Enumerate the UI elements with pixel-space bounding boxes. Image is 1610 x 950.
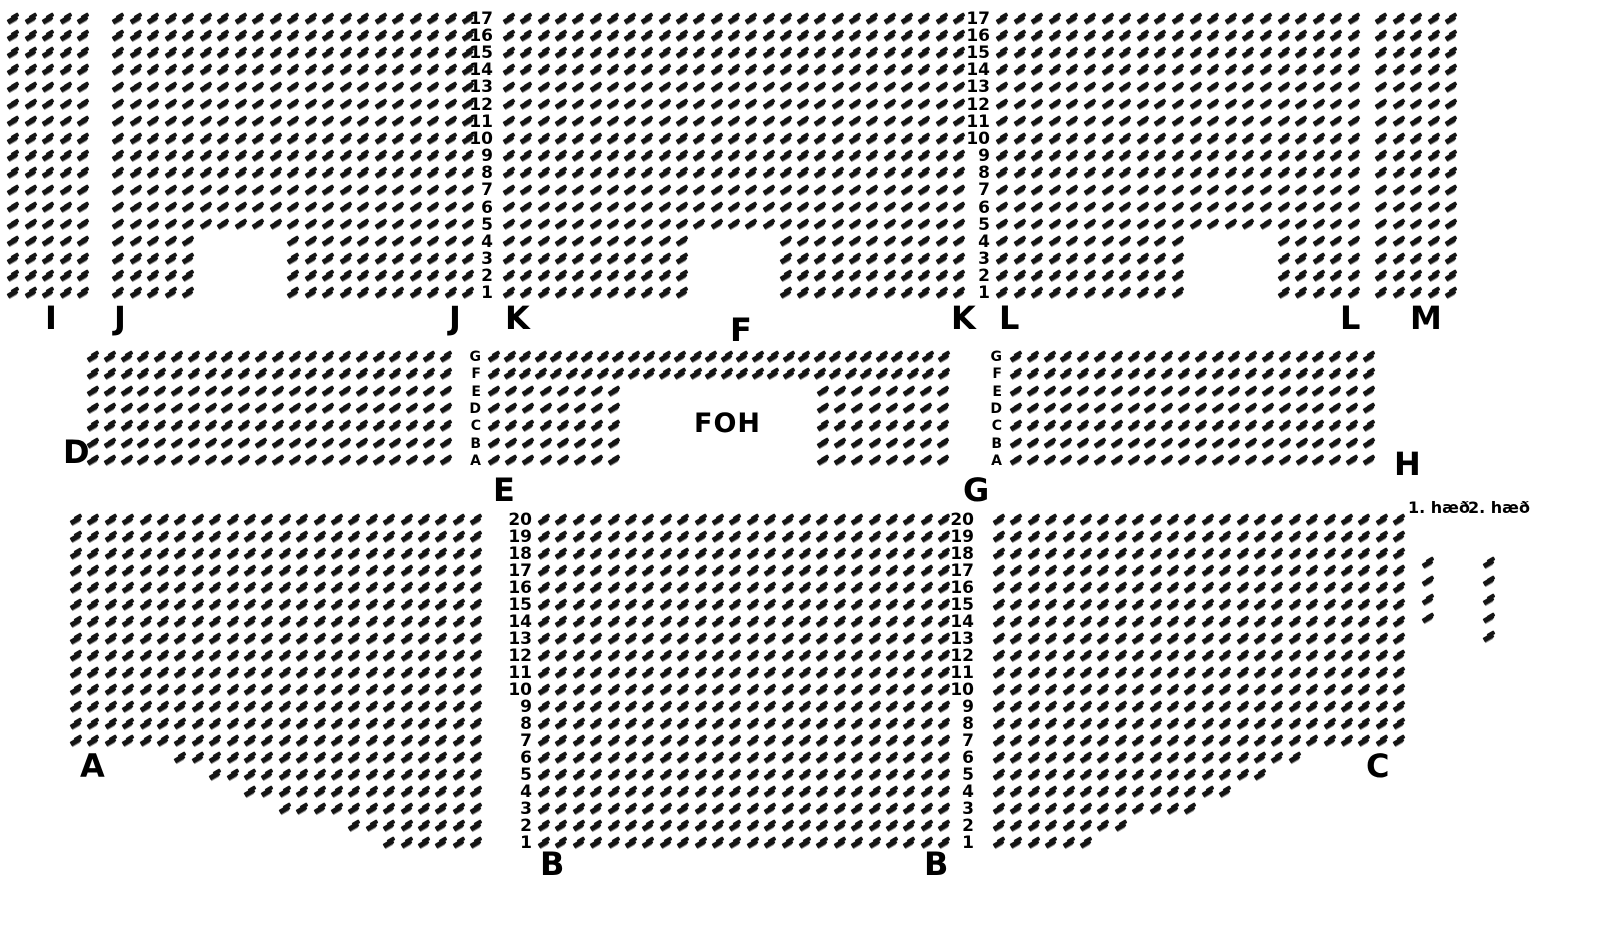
seat-C[interactable] [1237,583,1249,592]
seat-A[interactable] [331,753,343,762]
seat-F-upper[interactable] [866,151,878,160]
seat-F-upper[interactable] [676,65,688,74]
seat-C[interactable] [1010,532,1022,541]
seat-J[interactable] [112,254,124,263]
seat-C[interactable] [1254,600,1266,609]
seat-L[interactable] [1260,203,1272,212]
seat-I[interactable] [77,83,89,92]
seat-M[interactable] [1393,134,1405,143]
seat-B[interactable] [747,685,759,694]
seat-I[interactable] [60,203,72,212]
seat-F-upper[interactable] [901,31,913,40]
seat-J[interactable] [287,134,299,143]
seat-B[interactable] [764,532,776,541]
seat-L[interactable] [1330,14,1342,23]
seat-J[interactable] [410,31,422,40]
seat-F-upper[interactable] [641,254,653,263]
seat-C[interactable] [1289,532,1301,541]
seat-B[interactable] [573,600,585,609]
seat-H[interactable] [1195,387,1207,396]
seat-B[interactable] [729,804,741,813]
seat-F-upper[interactable] [503,117,515,126]
seat-L[interactable] [1207,151,1219,160]
seat-B[interactable] [555,821,567,830]
seat-A[interactable] [157,719,169,728]
seat-C[interactable] [1167,651,1179,660]
seat-B[interactable] [782,787,794,796]
seat-C[interactable] [1010,787,1022,796]
seat-J[interactable] [165,237,177,246]
seat-C[interactable] [993,702,1005,711]
seat-I[interactable] [25,151,37,160]
seat-M[interactable] [1375,134,1387,143]
seat-A[interactable] [261,702,273,711]
seat-L[interactable] [1102,288,1114,297]
seat-L[interactable] [1295,186,1307,195]
seat-J[interactable] [112,134,124,143]
seat-A[interactable] [348,787,360,796]
seat-B[interactable] [886,515,898,524]
seat-B[interactable] [608,838,620,847]
seat-I[interactable] [77,203,89,212]
seat-F-upper[interactable] [728,134,740,143]
seat-L[interactable] [1172,83,1184,92]
seat-A[interactable] [383,668,395,677]
seat-L[interactable] [1119,100,1131,109]
seat-F-upper[interactable] [780,48,792,57]
seat-A[interactable] [435,804,447,813]
seat-D[interactable] [255,352,267,361]
seat-B[interactable] [555,634,567,643]
seat-C[interactable] [1306,583,1318,592]
seat-H[interactable] [1094,352,1106,361]
seat-J[interactable] [130,117,142,126]
seat-B[interactable] [695,549,707,558]
seat-J[interactable] [270,48,282,57]
seat-D[interactable] [221,369,233,378]
seat-A[interactable] [383,651,395,660]
seat-F-upper[interactable] [901,14,913,23]
seat-A[interactable] [453,702,465,711]
seat-A[interactable] [227,719,239,728]
seat-A[interactable] [314,515,326,524]
seat-B[interactable] [851,770,863,779]
seat-A[interactable] [157,634,169,643]
seat-C[interactable] [1132,532,1144,541]
seat-F-upper[interactable] [538,117,550,126]
seat-C[interactable] [1167,583,1179,592]
seat-J[interactable] [217,168,229,177]
seat-A[interactable] [70,736,82,745]
seat-F-upper[interactable] [849,288,861,297]
seat-C[interactable] [1080,719,1092,728]
seat-B[interactable] [695,770,707,779]
seat-C[interactable] [1376,549,1388,558]
seat-F-upper[interactable] [884,134,896,143]
seat-EG-wide[interactable] [845,352,857,361]
seat-F-upper[interactable] [711,31,723,40]
seat-B[interactable] [660,770,672,779]
seat-G-block[interactable] [817,421,829,430]
seat-EG-wide[interactable] [876,369,888,378]
seat-H[interactable] [1111,421,1123,430]
seat-B[interactable] [799,804,811,813]
seat-L[interactable] [1066,186,1078,195]
seat-F-upper[interactable] [866,254,878,263]
seat-E-block[interactable] [574,439,586,448]
seat-F-upper[interactable] [814,168,826,177]
seat-A[interactable] [435,600,447,609]
seat-B[interactable] [677,549,689,558]
seat-L[interactable] [1313,271,1325,280]
seat-D[interactable] [305,439,317,448]
seat-A[interactable] [87,685,99,694]
seat-B[interactable] [851,549,863,558]
seat-A[interactable] [296,753,308,762]
seat-B[interactable] [903,838,915,847]
seat-F-upper[interactable] [624,186,636,195]
seat-A[interactable] [296,600,308,609]
seat-F-upper[interactable] [763,134,775,143]
seat-L[interactable] [1278,168,1290,177]
seat-A[interactable] [383,838,395,847]
seat-F-upper[interactable] [659,151,671,160]
seat-A[interactable] [366,719,378,728]
seat-J[interactable] [270,203,282,212]
seat-F-upper[interactable] [590,288,602,297]
seat-C[interactable] [1393,532,1405,541]
seat-C[interactable] [1028,634,1040,643]
seat-J[interactable] [112,186,124,195]
seat-L[interactable] [1049,65,1061,74]
seat-C[interactable] [1271,651,1283,660]
seat-M[interactable] [1393,117,1405,126]
seat-F-upper[interactable] [780,83,792,92]
seat-L[interactable] [1119,186,1131,195]
seat-C[interactable] [1341,617,1353,626]
seat-C[interactable] [1097,515,1109,524]
seat-J[interactable] [340,237,352,246]
seat-A[interactable] [261,617,273,626]
seat-B[interactable] [695,736,707,745]
seat-B[interactable] [816,804,828,813]
seat-C[interactable] [1132,583,1144,592]
seat-EG-wide[interactable] [488,369,500,378]
seat-J[interactable] [322,117,334,126]
seat-C[interactable] [1028,702,1040,711]
seat-F-upper[interactable] [814,117,826,126]
seat-B[interactable] [642,753,654,762]
seat-F-upper[interactable] [901,48,913,57]
seat-L[interactable] [1313,237,1325,246]
seat-L[interactable] [1154,117,1166,126]
seat-A[interactable] [105,515,117,524]
seat-C[interactable] [1063,685,1075,694]
seat-L[interactable] [1172,48,1184,57]
seat-B[interactable] [712,719,724,728]
seat-D[interactable] [154,421,166,430]
seat-B[interactable] [799,566,811,575]
seat-F-upper[interactable] [745,117,757,126]
seat-J[interactable] [392,117,404,126]
seat-A[interactable] [296,532,308,541]
seat-D[interactable] [389,439,401,448]
seat-E-block[interactable] [505,404,517,413]
seat-J[interactable] [392,151,404,160]
seat-A[interactable] [122,685,134,694]
seat-A[interactable] [296,583,308,592]
seat-L[interactable] [1102,100,1114,109]
seat-F-upper[interactable] [884,203,896,212]
seat-B[interactable] [886,668,898,677]
seat-B[interactable] [573,804,585,813]
seat-D[interactable] [356,352,368,361]
seat-B[interactable] [903,685,915,694]
seat-M[interactable] [1428,65,1440,74]
seat-L[interactable] [1031,83,1043,92]
seat-C[interactable] [1132,736,1144,745]
seat-M[interactable] [1393,168,1405,177]
seat-M[interactable] [1393,271,1405,280]
seat-L[interactable] [1119,220,1131,229]
seat-B[interactable] [555,600,567,609]
seat-EG-wide[interactable] [891,352,903,361]
seat-F-upper[interactable] [711,65,723,74]
seat-F-upper[interactable] [590,237,602,246]
seat-I[interactable] [60,117,72,126]
seat-A[interactable] [70,600,82,609]
seat-J[interactable] [287,254,299,263]
seat-C[interactable] [1237,736,1249,745]
seat-L[interactable] [1225,100,1237,109]
seat-F-upper[interactable] [763,151,775,160]
seat-A[interactable] [174,753,186,762]
seat-C[interactable] [1376,651,1388,660]
seat-D[interactable] [137,404,149,413]
seat-F-upper[interactable] [503,48,515,57]
seat-A[interactable] [366,515,378,524]
seat-F-upper[interactable] [676,83,688,92]
seat-C[interactable] [1080,787,1092,796]
seat-H[interactable] [1060,387,1072,396]
seat-B[interactable] [573,566,585,575]
seat-A[interactable] [296,515,308,524]
seat-L[interactable] [1242,48,1254,57]
seat-L[interactable] [1119,65,1131,74]
seat-C[interactable] [1306,651,1318,660]
seat-J[interactable] [340,48,352,57]
seat-C[interactable] [1150,566,1162,575]
seat-A[interactable] [122,634,134,643]
seat-C[interactable] [1219,770,1231,779]
seat-L[interactable] [1260,100,1272,109]
seat-B[interactable] [573,549,585,558]
seat-C[interactable] [1184,770,1196,779]
seat-B[interactable] [834,702,846,711]
seat-A[interactable] [244,770,256,779]
seat-A[interactable] [279,753,291,762]
seat-H[interactable] [1262,421,1274,430]
seat-A[interactable] [435,838,447,847]
seat-J[interactable] [305,288,317,297]
seat-F-upper[interactable] [503,186,515,195]
seat-A[interactable] [140,532,152,541]
seat-J[interactable] [410,271,422,280]
seat-A[interactable] [87,634,99,643]
seat-J[interactable] [427,151,439,160]
seat-F-upper[interactable] [590,220,602,229]
seat-F-upper[interactable] [572,186,584,195]
seat-H[interactable] [1178,387,1190,396]
seat-F-upper[interactable] [624,14,636,23]
seat-J[interactable] [322,288,334,297]
seat-C[interactable] [1132,600,1144,609]
seat-C[interactable] [1010,770,1022,779]
seat-I[interactable] [7,65,19,74]
seat-B[interactable] [695,838,707,847]
seat-F-upper[interactable] [607,31,619,40]
seat-A[interactable] [383,736,395,745]
seat-L[interactable] [1137,31,1149,40]
seat-F-upper[interactable] [918,168,930,177]
seat-C[interactable] [1080,583,1092,592]
seat-C[interactable] [1097,804,1109,813]
seat-H[interactable] [1212,369,1224,378]
seat-L[interactable] [1278,271,1290,280]
seat-A[interactable] [470,600,482,609]
seat-H[interactable] [1296,456,1308,465]
seat-H[interactable] [1161,387,1173,396]
seat-C[interactable] [1115,583,1127,592]
seat-H[interactable] [1027,421,1039,430]
seat-C[interactable] [1080,651,1092,660]
seat-B[interactable] [555,617,567,626]
seat-F-upper[interactable] [555,48,567,57]
seat-C[interactable] [1358,668,1370,677]
seat-J[interactable] [287,168,299,177]
seat-L[interactable] [1313,134,1325,143]
seat-L[interactable] [1278,48,1290,57]
seat-F-upper[interactable] [624,48,636,57]
seat-H[interactable] [1010,456,1022,465]
seat-J[interactable] [305,220,317,229]
seat-H[interactable] [1060,352,1072,361]
seat-C[interactable] [1341,600,1353,609]
seat-J[interactable] [182,186,194,195]
seat-B[interactable] [573,668,585,677]
seat-C[interactable] [1254,719,1266,728]
seat-L[interactable] [1172,134,1184,143]
seat-L[interactable] [1330,203,1342,212]
seat-C[interactable] [1010,719,1022,728]
seat-L[interactable] [1066,65,1078,74]
seat-D[interactable] [137,387,149,396]
seat-L[interactable] [1154,83,1166,92]
seat-J[interactable] [410,117,422,126]
seat-M[interactable] [1428,203,1440,212]
seat-G-block[interactable] [834,421,846,430]
seat-D[interactable] [423,369,435,378]
seat-F-upper[interactable] [676,186,688,195]
seat-B[interactable] [869,821,881,830]
seat-E-block[interactable] [505,387,517,396]
seat-B[interactable] [799,770,811,779]
seat-B[interactable] [834,736,846,745]
seat-G-block[interactable] [851,404,863,413]
seat-A[interactable] [331,787,343,796]
seat-G-block[interactable] [817,387,829,396]
seat-C[interactable] [993,583,1005,592]
seat-A[interactable] [87,719,99,728]
seat-I[interactable] [60,151,72,160]
seat-D[interactable] [272,421,284,430]
seat-C[interactable] [1341,532,1353,541]
seat-B[interactable] [555,515,567,524]
seat-M[interactable] [1445,14,1457,23]
seat-L[interactable] [1190,100,1202,109]
seat-J[interactable] [165,134,177,143]
seat-B[interactable] [886,787,898,796]
seat-F-upper[interactable] [711,48,723,57]
seat-C[interactable] [1010,668,1022,677]
seat-J[interactable] [112,31,124,40]
seat-C[interactable] [1115,702,1127,711]
seat-J[interactable] [340,254,352,263]
seat-L[interactable] [1172,254,1184,263]
seat-D[interactable] [322,352,334,361]
seat-B[interactable] [590,787,602,796]
seat-B[interactable] [660,651,672,660]
seat-M[interactable] [1410,151,1422,160]
seat-B[interactable] [747,753,759,762]
seat-F-upper[interactable] [659,65,671,74]
seat-B[interactable] [869,770,881,779]
seat-J[interactable] [252,151,264,160]
seat-J[interactable] [410,220,422,229]
seat-EG-wide[interactable] [674,352,686,361]
seat-C[interactable] [1028,583,1040,592]
seat-H[interactable] [1279,352,1291,361]
seat-L[interactable] [1330,31,1342,40]
seat-F-upper[interactable] [520,203,532,212]
seat-F-upper[interactable] [763,31,775,40]
seat-C[interactable] [1202,515,1214,524]
seat-L[interactable] [1049,117,1061,126]
seat-F-upper[interactable] [780,271,792,280]
seat-C[interactable] [1115,600,1127,609]
seat-F-upper[interactable] [624,220,636,229]
seat-A[interactable] [453,685,465,694]
seat-F-upper[interactable] [901,237,913,246]
seat-L[interactable] [1137,151,1149,160]
seat-B[interactable] [642,719,654,728]
seat-C[interactable] [1341,515,1353,524]
seat-EG-wide[interactable] [860,369,872,378]
seat-A[interactable] [314,600,326,609]
seat-C[interactable] [1219,617,1231,626]
seat-A[interactable] [383,583,395,592]
seat-M[interactable] [1428,48,1440,57]
seat-H[interactable] [1144,352,1156,361]
seat-L[interactable] [1014,254,1026,263]
seat-A[interactable] [314,770,326,779]
seat-L[interactable] [1119,151,1131,160]
seat-B[interactable] [625,685,637,694]
seat-L[interactable] [1119,83,1131,92]
seat-A[interactable] [244,685,256,694]
seat-C[interactable] [1045,600,1057,609]
seat-A[interactable] [401,515,413,524]
